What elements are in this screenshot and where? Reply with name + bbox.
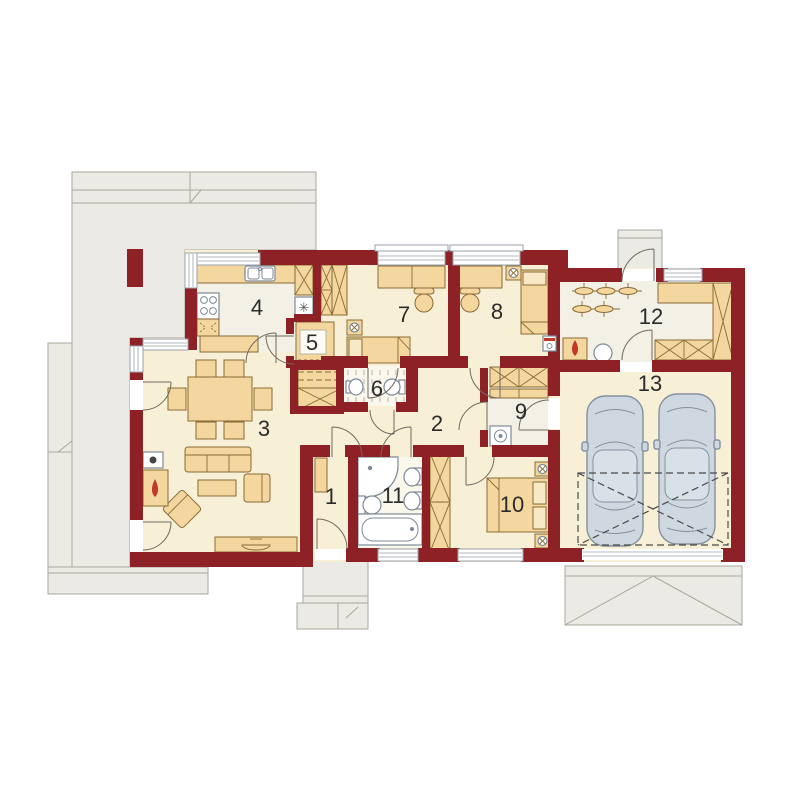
room-label-13: 13 [638, 371, 662, 396]
room-label-2: 2 [431, 411, 443, 436]
room-label-7: 7 [398, 302, 410, 327]
car-icon [582, 396, 648, 546]
room-label-9: 9 [515, 399, 527, 424]
room-label-10: 10 [500, 492, 524, 517]
room-label-4: 4 [251, 295, 263, 320]
radiator [543, 336, 556, 351]
wardrobe [490, 367, 548, 398]
garage-apron [565, 566, 742, 625]
base-cabinet [197, 319, 219, 336]
wc-sink-icon [346, 379, 363, 395]
wardrobe [655, 340, 713, 360]
bed [521, 270, 548, 334]
window [664, 269, 702, 281]
tall-cabinet [295, 265, 313, 295]
stove-icon [197, 293, 219, 319]
toilet-icon [358, 496, 381, 514]
bathtub-icon [358, 514, 422, 545]
room-label-8: 8 [491, 299, 503, 324]
floor-plan-svg: ✳ [0, 0, 800, 800]
window [143, 339, 188, 350]
chimney [127, 249, 143, 287]
sink-icon [404, 468, 422, 486]
nightstand-lamp-icon [535, 534, 550, 548]
coffee-table [198, 480, 236, 496]
desk [378, 266, 445, 288]
garage-door [582, 549, 723, 560]
washing-machine-icon [490, 426, 511, 446]
workbench [658, 283, 713, 303]
window [197, 253, 260, 265]
room-label-11: 11 [382, 483, 405, 508]
desk [456, 266, 502, 288]
window [130, 346, 143, 372]
room-label-5: 5 [306, 330, 318, 355]
room-label-6: 6 [371, 376, 383, 401]
boiler-icon [563, 338, 587, 360]
room-label-3: 3 [258, 416, 270, 441]
nightstand-lamp-icon [535, 462, 550, 476]
nightstand-lamp-icon [506, 266, 521, 280]
armchair [244, 474, 270, 502]
tv-cabinet [215, 537, 297, 552]
office-chair [460, 288, 480, 312]
floor-plan-page: ✳ [0, 0, 800, 800]
car-icon [654, 394, 720, 544]
sofa [185, 447, 251, 472]
kitchen-sink-icon [245, 266, 275, 281]
svg-text:✳: ✳ [299, 301, 310, 316]
window [458, 549, 523, 561]
sink-icon [404, 492, 422, 510]
window [378, 549, 418, 561]
room-label-1: 1 [325, 484, 337, 509]
wardrobe [713, 283, 733, 360]
window [378, 251, 445, 265]
office-chair [414, 288, 434, 312]
stairs [298, 364, 342, 410]
wardrobe [321, 265, 347, 315]
room-label-12: 12 [639, 304, 663, 329]
window [453, 251, 520, 265]
wardrobe [430, 453, 450, 552]
window [185, 253, 197, 288]
nightstand-lamp-icon [347, 320, 362, 335]
